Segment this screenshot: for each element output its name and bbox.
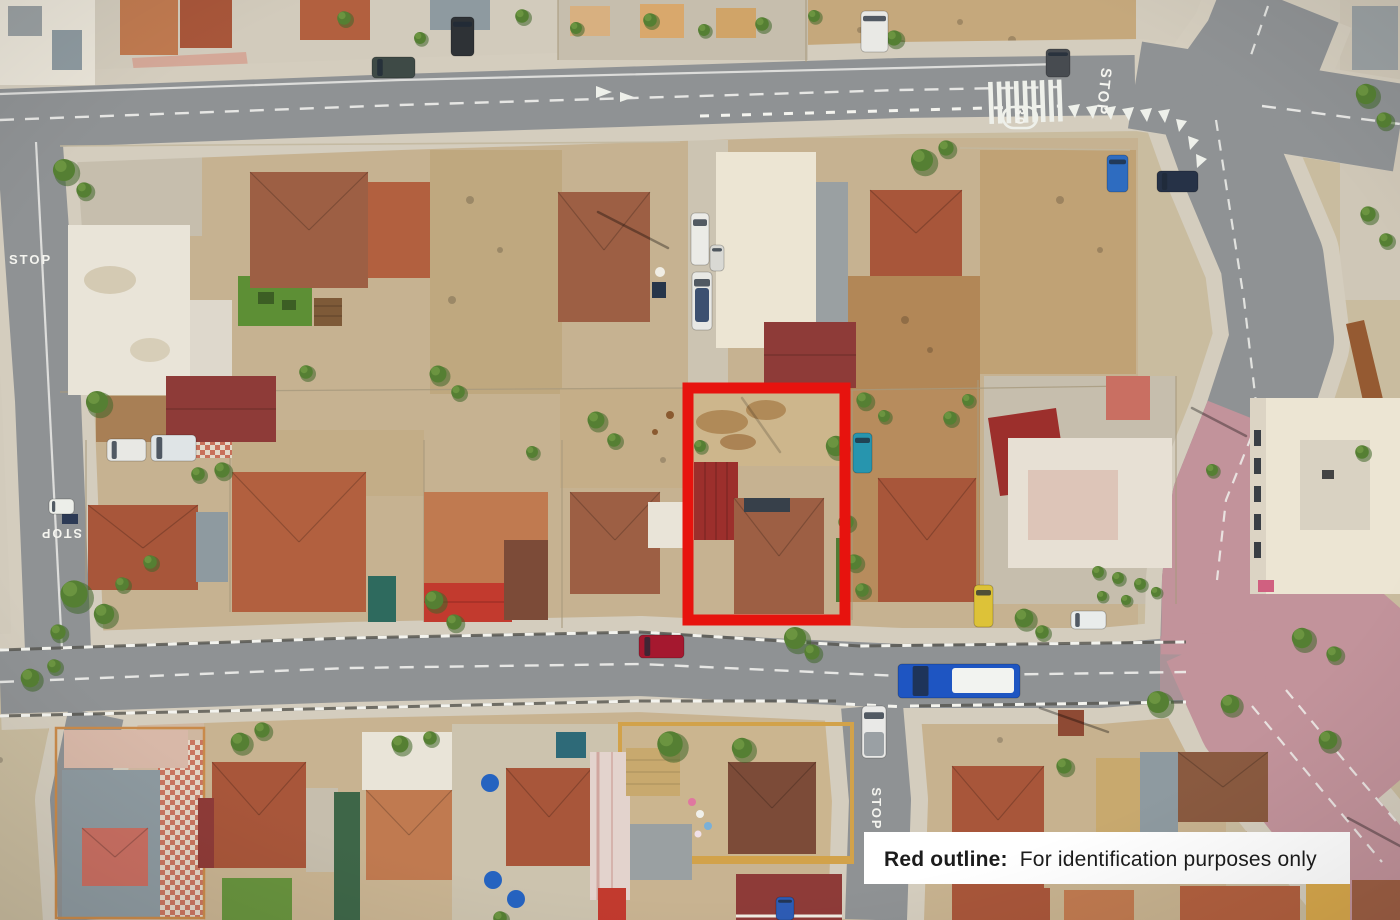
aerial-photo: STOP STOP STOP STOP 30 [0, 0, 1400, 920]
vehicle-pickup-white [862, 706, 886, 758]
vehicle-car-blue-top [1107, 155, 1128, 192]
vehicle-car-white-driveway [710, 245, 724, 271]
roof-tan-corrugated [1096, 758, 1140, 832]
roof-pink-white [590, 752, 630, 900]
vehicle-car-yellow [974, 585, 993, 627]
umbrella-blue [481, 774, 499, 792]
road-marking-speed-30: 30 [1013, 108, 1028, 126]
vehicle-car-white-parked [1071, 611, 1106, 629]
lawn-bottom [222, 878, 292, 920]
pergola-brown [314, 298, 342, 326]
vehicle-van-white-driveway [691, 213, 709, 265]
road-marking-stop-left-upper: STOP [9, 252, 52, 267]
warehouse-white-roof [716, 152, 816, 348]
legend-box: Red outline: For identification purposes… [864, 832, 1350, 884]
vehicle-suv-dark-top [451, 17, 474, 56]
roof-dark-brown-wing [504, 540, 548, 620]
roof-terracotta-house [368, 182, 430, 278]
roof-house-e [570, 492, 660, 594]
building-white-flat [68, 225, 190, 395]
vehicle-car-white-yard-a [107, 439, 146, 461]
roof-terracotta-nw [558, 192, 650, 322]
vehicle-car-blue-bottom-street [776, 897, 794, 920]
vehicle-car-darkteal-top [372, 57, 415, 78]
legend-text: Red outline: For identification purposes… [884, 848, 1317, 871]
vehicle-car-teal [853, 433, 872, 473]
pergola-dark [744, 498, 790, 512]
vehicle-bus-blue [898, 664, 1020, 698]
roof-gray-corrugated [630, 824, 692, 880]
roof-terracotta [120, 0, 178, 55]
umbrella-blue [507, 890, 525, 908]
road-marking-stop-bottom: STOP [869, 787, 884, 830]
vehicle-van-white-yard-b [151, 435, 196, 461]
pink-awning [1258, 580, 1274, 592]
roof-gray-ne [1352, 6, 1398, 70]
shed-teal [368, 576, 396, 622]
aerial-scene: STOP STOP STOP STOP 30 [0, 0, 1400, 920]
vehicle-car-navy-top [1157, 171, 1198, 192]
legend-bold: Red outline: [884, 848, 1008, 871]
legend-rest: For identification purposes only [1020, 848, 1317, 871]
vehicle-car-white-left-road [49, 499, 74, 514]
warehouse-gray-roof [816, 182, 848, 330]
vehicle-car-dark-corner [1046, 49, 1070, 77]
vehicle-van-white-top [861, 11, 888, 52]
building-yellow-corner [1306, 884, 1350, 920]
pool-teal [556, 732, 586, 758]
roof-salmon [1106, 376, 1150, 420]
white-building-east [1250, 398, 1400, 594]
umbrella-blue [484, 871, 502, 889]
road-marking-stop-left-lower: STOP [40, 526, 82, 540]
shed-green [334, 792, 360, 920]
vehicle-car-crimson [639, 635, 684, 658]
roof-terracotta [180, 0, 232, 48]
vehicle-boat-white [692, 272, 712, 330]
